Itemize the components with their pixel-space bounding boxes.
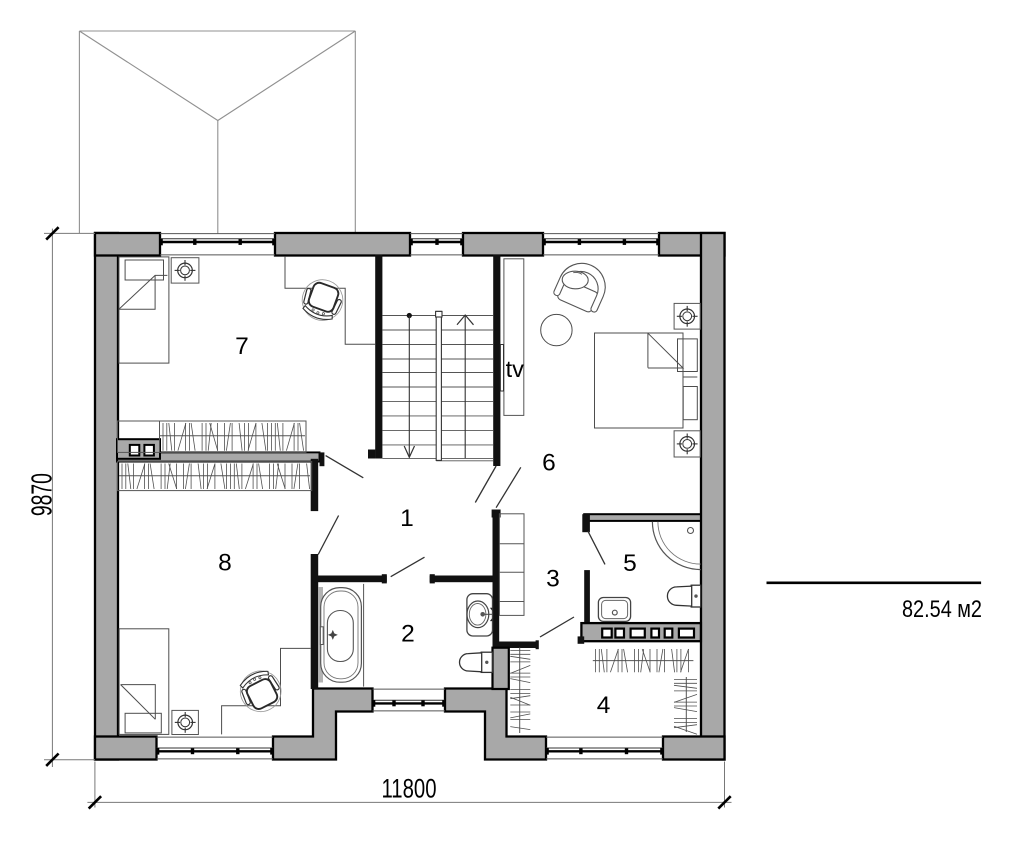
svg-text:2: 2 [401,621,415,648]
svg-text:11800: 11800 [382,773,437,803]
svg-text:9870: 9870 [26,473,58,516]
svg-text:3: 3 [546,566,560,593]
svg-text:4: 4 [597,692,611,719]
svg-text:7: 7 [235,333,249,360]
svg-text:6: 6 [542,450,556,477]
svg-text:tv: tv [506,356,525,382]
svg-text:82.54 м2: 82.54 м2 [902,596,982,623]
svg-text:5: 5 [623,550,637,577]
svg-text:1: 1 [400,505,414,532]
svg-text:8: 8 [218,550,232,577]
